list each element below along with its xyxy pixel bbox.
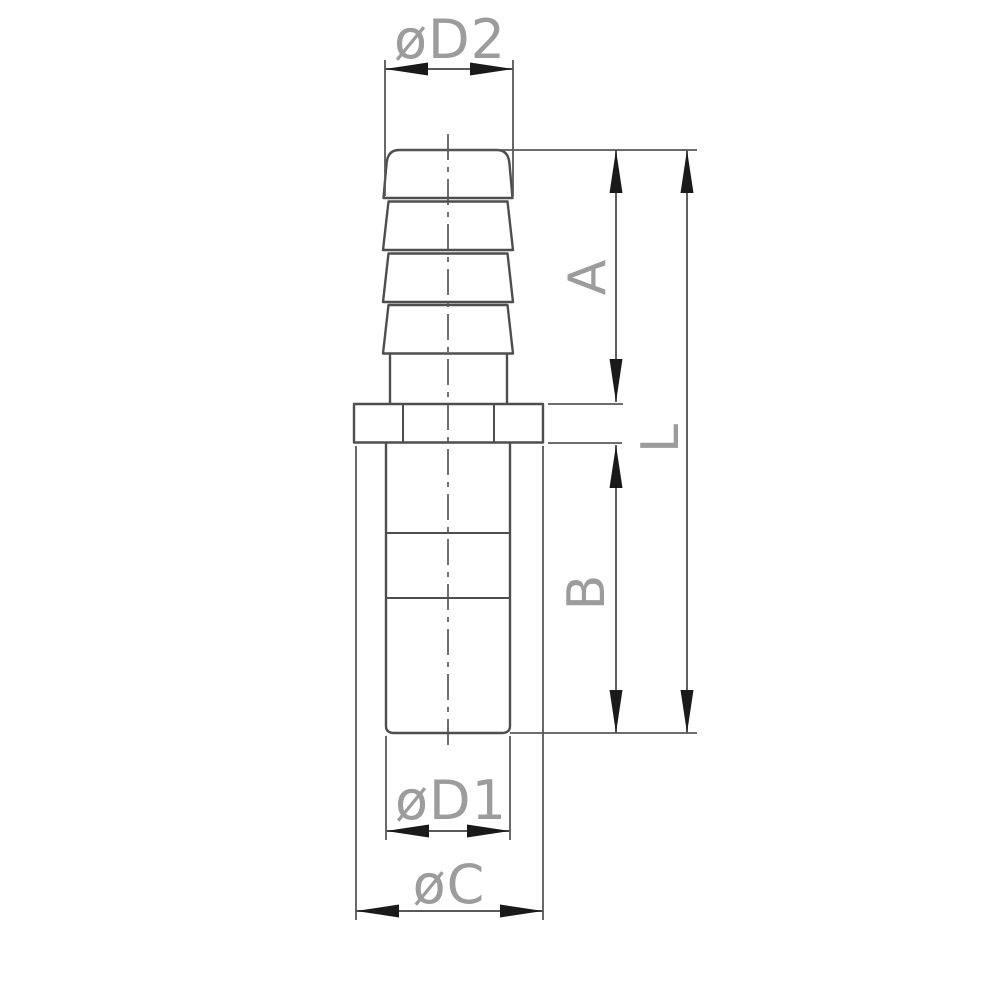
dimension-b: B [557,445,623,733]
dimension-label-l: L [631,423,691,453]
dimension-label-a: A [558,259,618,296]
l-arrow-top-icon [681,150,694,193]
dimension-label-b: B [557,574,617,611]
dimension-label-d1: øD1 [395,769,507,832]
dimension-c: øC [356,446,543,920]
a-arrow-bottom-icon [610,359,623,402]
c-arrow-left-icon [356,905,399,918]
dimension-d2: øD2 [385,8,513,196]
b-arrow-bottom-icon [610,690,623,733]
dimension-label-c: øC [413,853,486,916]
dimension-a: A [558,150,623,402]
dimension-label-d2: øD2 [394,8,506,71]
c-arrow-right-icon [500,905,543,918]
drawing-svg: øD2 A B L [0,0,1000,1000]
fitting-outline [354,134,543,750]
technical-drawing: øD2 A B L [0,0,1000,1000]
l-arrow-bottom-icon [681,690,694,733]
dimension-d1: øD1 [386,736,510,840]
a-arrow-top-icon [610,150,623,193]
dimension-l: L [631,150,694,733]
b-arrow-top-icon [610,445,623,488]
